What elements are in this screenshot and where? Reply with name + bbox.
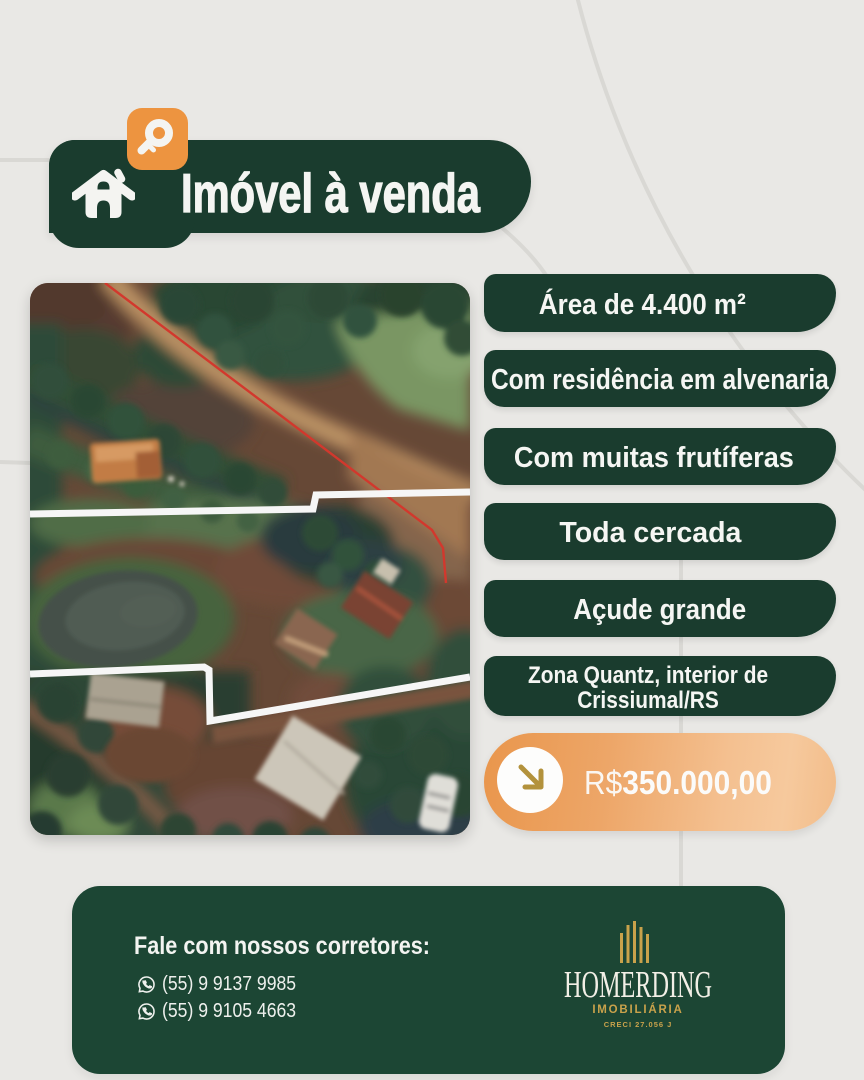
svg-text:HOMERDING: HOMERDING — [564, 964, 712, 1003]
